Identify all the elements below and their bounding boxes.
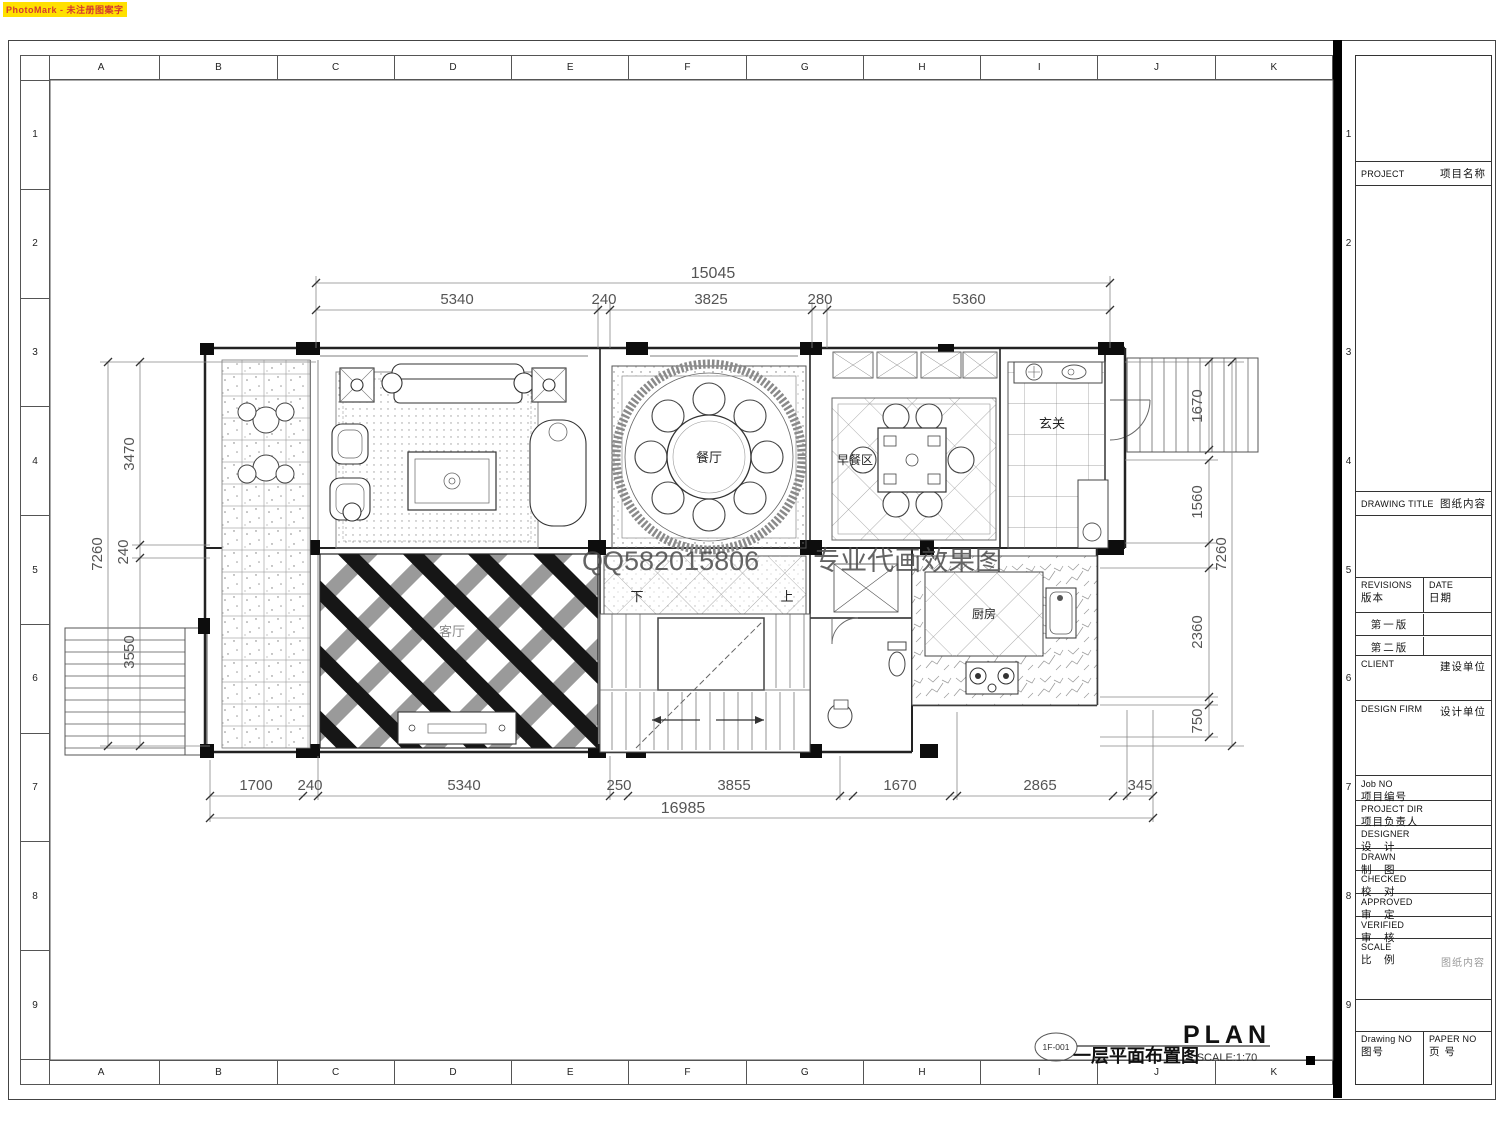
design-firm-row: DESIGN FIRM 设计单位 — [1356, 702, 1491, 776]
grid-label: 3 — [1343, 298, 1354, 407]
job-no-row: Job NO项目编号 — [1356, 777, 1491, 801]
grid-label: 8 — [1343, 842, 1354, 951]
coffee-table — [408, 452, 496, 510]
floor-plan: 客厅 餐厅 下 上 — [0, 0, 1340, 1100]
revision-row-2: 第二版 — [1356, 637, 1491, 656]
dim-label: 5340 — [447, 777, 480, 794]
drawing-titlebar: 1F-001 PLAN 一层平面布置图 SCALE:1:70 — [1035, 1021, 1315, 1066]
grid-label: 7 — [1343, 733, 1354, 842]
bay-windows — [833, 352, 997, 378]
project-dir-row: PROJECT DIR项目负责人 — [1356, 802, 1491, 826]
dim-label: 3855 — [717, 777, 750, 794]
room-label-breakfast: 早餐区 — [837, 452, 873, 467]
dim-label: 345 — [1127, 777, 1152, 794]
project-row: PROJECT 项目名称 — [1356, 161, 1491, 186]
dim-label: 2865 — [1023, 777, 1056, 794]
tv-cabinet — [398, 712, 516, 744]
dim-label: 2360 — [1189, 615, 1206, 648]
dim-label: 1560 — [1189, 485, 1206, 518]
staircase: 下 上 — [600, 556, 810, 752]
drawing-title-row: DRAWING TITLE 图纸内容 — [1356, 491, 1491, 516]
grid-label: 6 — [1343, 624, 1354, 733]
plan-word: PLAN — [1183, 1021, 1271, 1049]
dim-label: 5360 — [952, 291, 985, 308]
breakfast-area: 早餐区 — [832, 352, 997, 540]
grid-ruler-right: 123456789 — [1343, 80, 1354, 1060]
qq-watermark: QQ582015806 专业代画效果图 — [582, 546, 1002, 576]
designer-row: DESIGNER设 计 — [1356, 827, 1491, 849]
dim-label: 750 — [1189, 708, 1206, 733]
scale-row: SCALE比 例 图纸内容 — [1356, 940, 1491, 1000]
dim-label: 5340 — [440, 291, 473, 308]
dim-label: 1670 — [883, 777, 916, 794]
verified-row: VERIFIED审 核 — [1356, 918, 1491, 939]
dim-label: 280 — [807, 291, 832, 308]
dim-label: 240 — [297, 777, 322, 794]
kitchen: 厨房 — [912, 556, 1097, 705]
dim-label: 3550 — [121, 635, 138, 668]
balcony — [222, 360, 310, 748]
dim-label: 1700 — [239, 777, 272, 794]
dim-label: 240 — [591, 291, 616, 308]
dim-label: 3825 — [694, 291, 727, 308]
title-block: PROJECT 项目名称 DRAWING TITLE 图纸内容 REVISION… — [1355, 55, 1492, 1085]
dim-label: 3470 — [121, 437, 138, 470]
scale-note: 图纸内容 — [1441, 954, 1485, 969]
approved-row: APPROVED审 定 — [1356, 895, 1491, 917]
dim-label: 7260 — [89, 537, 106, 570]
grid-label: 9 — [1343, 951, 1354, 1060]
toilet — [888, 642, 906, 650]
dining-room: 餐厅 — [612, 364, 806, 550]
dim-label: 15045 — [691, 265, 736, 282]
room-label-living: 客厅 — [439, 624, 465, 639]
drawn-row: DRAWN制 图 — [1356, 850, 1491, 871]
room-label-dining: 餐厅 — [696, 450, 722, 465]
drawing-sheet: PhotoMark - 未注册图案字 ABCDEFGHIJK ABCDEFGHI… — [0, 0, 1500, 1138]
stair-up-label: 上 — [780, 589, 793, 604]
bathroom — [828, 618, 906, 728]
dim-label: 16985 — [661, 800, 706, 817]
room-label-kitchen: 厨房 — [972, 606, 996, 621]
grid-label: 1 — [1343, 80, 1354, 189]
checked-row: CHECKED校 对 — [1356, 872, 1491, 894]
room-label-foyer: 玄关 — [1039, 416, 1065, 431]
stair-down-label: 下 — [630, 589, 643, 604]
drawing-name: 一层平面布置图 — [1073, 1045, 1199, 1066]
grid-label: 5 — [1343, 516, 1354, 625]
exterior-stair-top-right — [1110, 358, 1258, 452]
kitchen-sink — [1046, 588, 1076, 638]
stove — [966, 662, 1018, 694]
dim-label: 250 — [606, 777, 631, 794]
living-room: 客厅 — [320, 364, 598, 748]
grid-label: 2 — [1343, 189, 1354, 298]
drawing-scale: SCALE:1:70 — [1197, 1052, 1258, 1064]
revisions-header-row: REVISIONS 版本 DATE 日期 — [1356, 577, 1491, 613]
foyer: 玄关 — [1008, 362, 1108, 548]
drawing-tag: 1F-001 — [1043, 1042, 1070, 1052]
grid-label: 4 — [1343, 407, 1354, 516]
dim-label: 7260 — [1213, 537, 1230, 570]
dim-label: 1670 — [1189, 389, 1206, 422]
revision-row-1: 第一版 — [1356, 614, 1491, 636]
drawing-no-row: Drawing NO 图号 PAPER NO 页 号 — [1356, 1031, 1491, 1085]
client-row: CLIENT 建设单位 — [1356, 657, 1491, 701]
dim-label: 240 — [115, 539, 132, 564]
